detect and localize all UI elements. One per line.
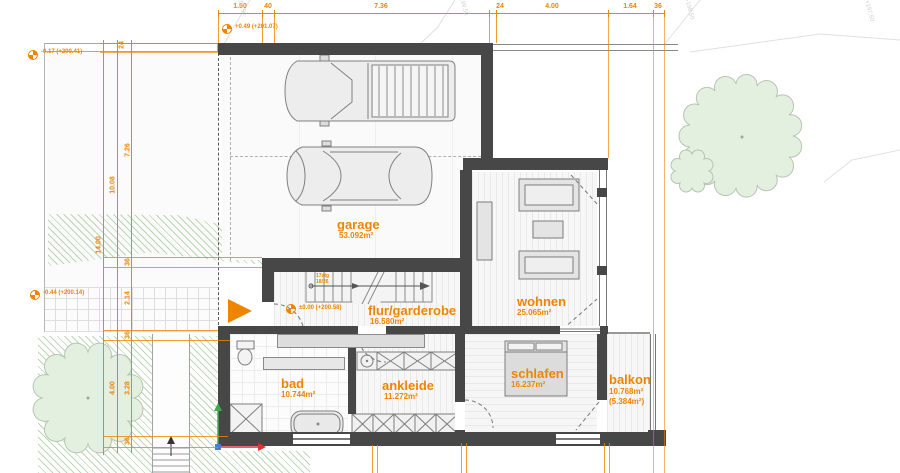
room-label-balkon: balkon xyxy=(609,372,651,387)
room-area-ankleide: 11.272m² xyxy=(384,392,418,401)
dim-extension xyxy=(461,443,462,473)
dim-label: 40 xyxy=(264,3,272,10)
dim-extension xyxy=(608,16,609,158)
room-area-schlafen: 16.237m² xyxy=(511,380,545,389)
dim-label: 2.14 xyxy=(125,291,132,305)
dim-label: 36 xyxy=(125,437,132,445)
dim-label: 36 xyxy=(125,331,132,339)
dim-label: 24 xyxy=(119,41,126,49)
level-marker-icon xyxy=(30,290,40,300)
dim-label: 4.00 xyxy=(110,381,117,395)
dim-label: 24 xyxy=(496,3,504,10)
dim-label: 1.64 xyxy=(623,3,637,10)
room-area-garage: 53.092m² xyxy=(339,231,373,240)
room-area-bad: 10.744m² xyxy=(281,390,315,399)
room-area-balkon-secondary: (5.384m²) xyxy=(609,397,644,406)
dim-chain-left-outer xyxy=(103,40,104,455)
dim-label: 7.36 xyxy=(374,3,388,10)
dim-extension xyxy=(653,16,654,473)
dim-connector xyxy=(103,267,262,268)
dim-label: 14.00 xyxy=(96,236,103,254)
dim-connector xyxy=(103,340,230,341)
dim-connector xyxy=(103,447,218,448)
dim-chain-top xyxy=(218,13,664,14)
dim-label: 7.26 xyxy=(125,143,132,157)
level-marker-icon xyxy=(286,304,296,314)
dim-extension xyxy=(372,445,373,473)
dim-extension xyxy=(377,445,378,473)
walkway-direction-arrow-icon xyxy=(167,436,175,456)
level-marker-icons xyxy=(28,24,296,314)
dim-extension xyxy=(218,16,219,43)
annotation-layer xyxy=(0,0,900,473)
dim-extension xyxy=(609,443,610,473)
dim-extension xyxy=(489,16,490,43)
dim-extension xyxy=(466,443,467,473)
level-marker-icon xyxy=(222,24,232,34)
room-label-ankleide: ankleide xyxy=(382,378,434,393)
floor-plan: 1.50 40 7.36 24 4.00 1.64 36 24 7.26 10.… xyxy=(0,0,900,473)
dim-chain-left-mid xyxy=(117,40,118,453)
dim-label: 10.08 xyxy=(110,176,117,194)
dim-extension xyxy=(604,443,605,473)
dim-extension xyxy=(496,16,497,43)
origin-axis xyxy=(214,403,266,451)
dim-connector xyxy=(103,330,218,331)
dim-label: 36 xyxy=(654,3,662,10)
stair-note: 18/26 xyxy=(316,279,329,285)
dim-label: 36 xyxy=(125,258,132,266)
room-label-garage: garage xyxy=(337,217,380,232)
room-area-flur: 16.580m² xyxy=(370,317,404,326)
room-label-bad: bad xyxy=(281,376,304,391)
room-label-schlafen: schlafen xyxy=(511,366,564,381)
dim-connector xyxy=(100,52,218,53)
level-marker-icon xyxy=(28,50,38,60)
dim-label: 4.00 xyxy=(545,3,559,10)
level-annotation: +0.49 (+201.07) xyxy=(235,24,278,30)
dim-label: 3.28 xyxy=(125,381,132,395)
entrance-arrow-icon xyxy=(228,299,252,323)
level-annotation: ±0.00 (+200.58) xyxy=(299,305,342,311)
level-annotation: -0.17 (+200.41) xyxy=(41,49,82,55)
room-label-wohnen: wohnen xyxy=(517,294,566,309)
dim-extension xyxy=(664,16,665,473)
room-label-flur: flur/garderobe xyxy=(368,303,456,318)
level-annotation: -0.44 (+200.14) xyxy=(43,290,84,296)
room-area-wohnen: 25.065m² xyxy=(517,308,551,317)
room-area-balkon: 10.768m² xyxy=(609,387,643,396)
dim-connector xyxy=(103,436,228,437)
